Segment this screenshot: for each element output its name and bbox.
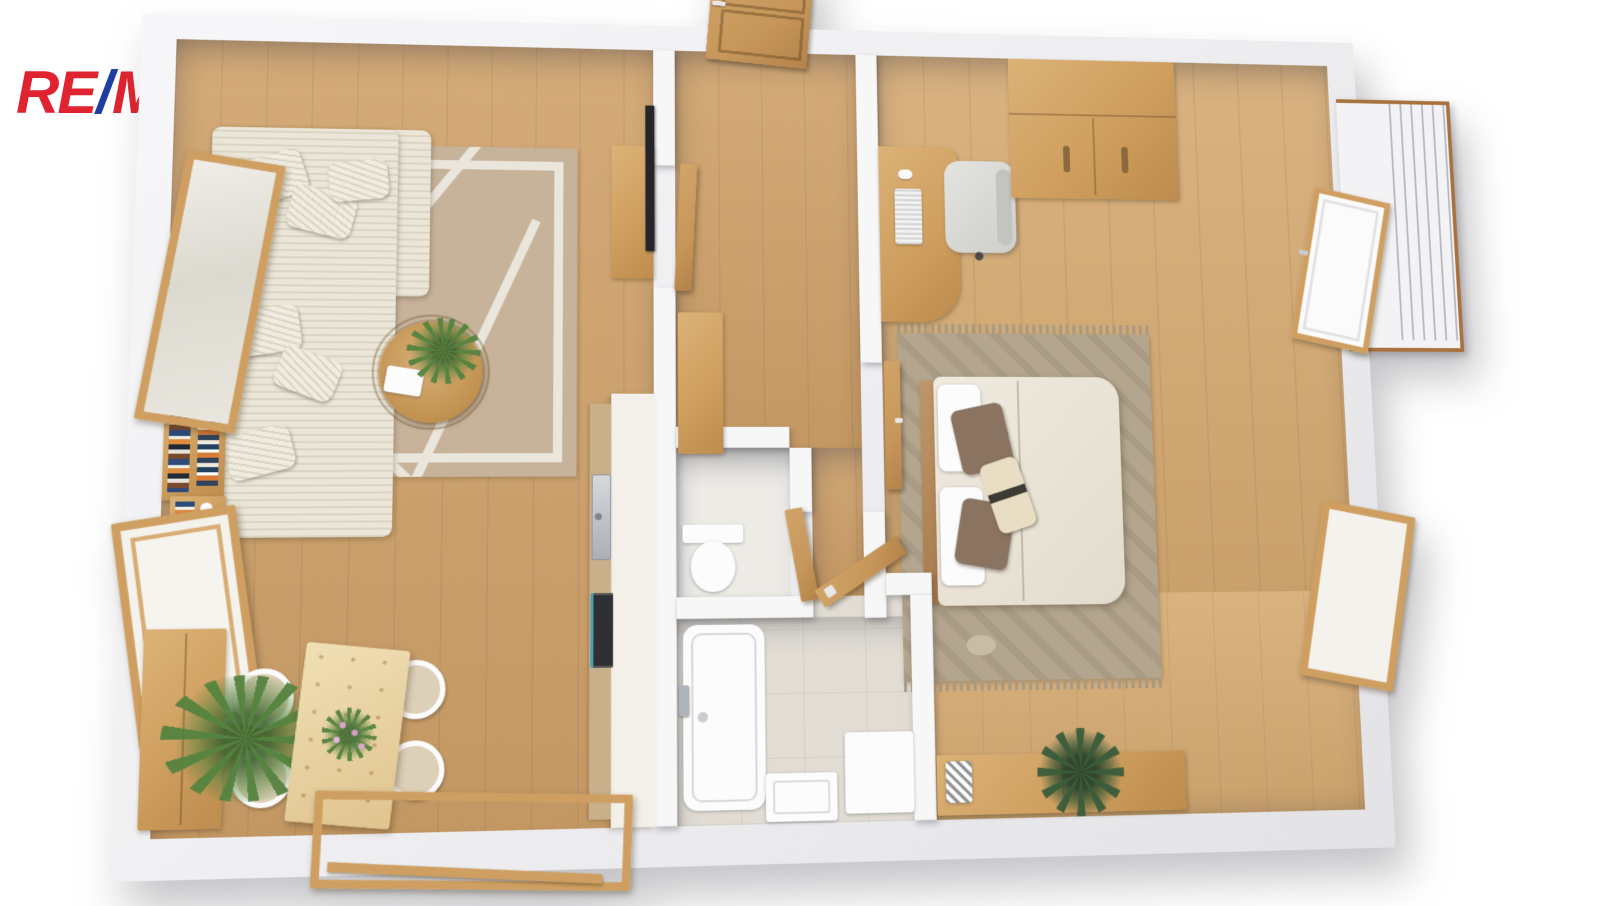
bathtub — [683, 624, 766, 811]
wall-living-hall-south — [654, 288, 678, 827]
sofa-pillow — [327, 158, 390, 202]
bedroom-door — [884, 361, 902, 490]
cooktop — [590, 593, 613, 668]
coffee-table-plant — [406, 317, 481, 384]
logo-slash: / — [95, 59, 112, 126]
wardrobe — [1008, 59, 1179, 201]
wall-wc-east — [790, 448, 813, 512]
hallway-sideboard — [678, 312, 724, 454]
magazine — [946, 761, 973, 803]
entrance-door-handle — [712, 0, 726, 6]
floor-plan — [111, 13, 1396, 882]
wardrobe-door-seam — [1092, 118, 1096, 195]
bathroom-vanity — [766, 772, 838, 822]
entrance-door-panel — [718, 9, 805, 61]
vanity-basin — [773, 780, 831, 815]
bathroom-door-handle — [823, 584, 837, 598]
wardrobe-handle — [1121, 147, 1128, 173]
chair-caster — [975, 252, 984, 261]
dining-table-flowers — [318, 705, 380, 763]
logo-re: RE — [16, 59, 95, 126]
keyboard — [894, 188, 922, 244]
wall-wc-south — [677, 596, 814, 619]
kitchen-cabinets — [611, 394, 655, 828]
washing-machine — [845, 731, 915, 814]
wall-living-hall-north — [653, 50, 675, 166]
kitchen-faucet — [595, 513, 602, 520]
mouse — [898, 169, 913, 179]
wardrobe-handle — [1063, 146, 1070, 172]
balcony-railing-bars — [1389, 104, 1460, 341]
flower-blooms — [339, 722, 346, 729]
apartment-interior — [150, 39, 1365, 839]
rug-fringe-top — [897, 324, 1149, 335]
toilet-bowl — [691, 541, 736, 592]
wall-jog — [886, 573, 932, 596]
office-chair — [944, 161, 1017, 254]
bedroom-door-handle — [895, 418, 903, 423]
bathtub-faucet — [679, 685, 689, 716]
entrance-door — [705, 0, 814, 69]
tv-screen — [645, 106, 654, 252]
coffee-table — [378, 321, 483, 422]
balcony-door-glass — [1303, 199, 1380, 342]
